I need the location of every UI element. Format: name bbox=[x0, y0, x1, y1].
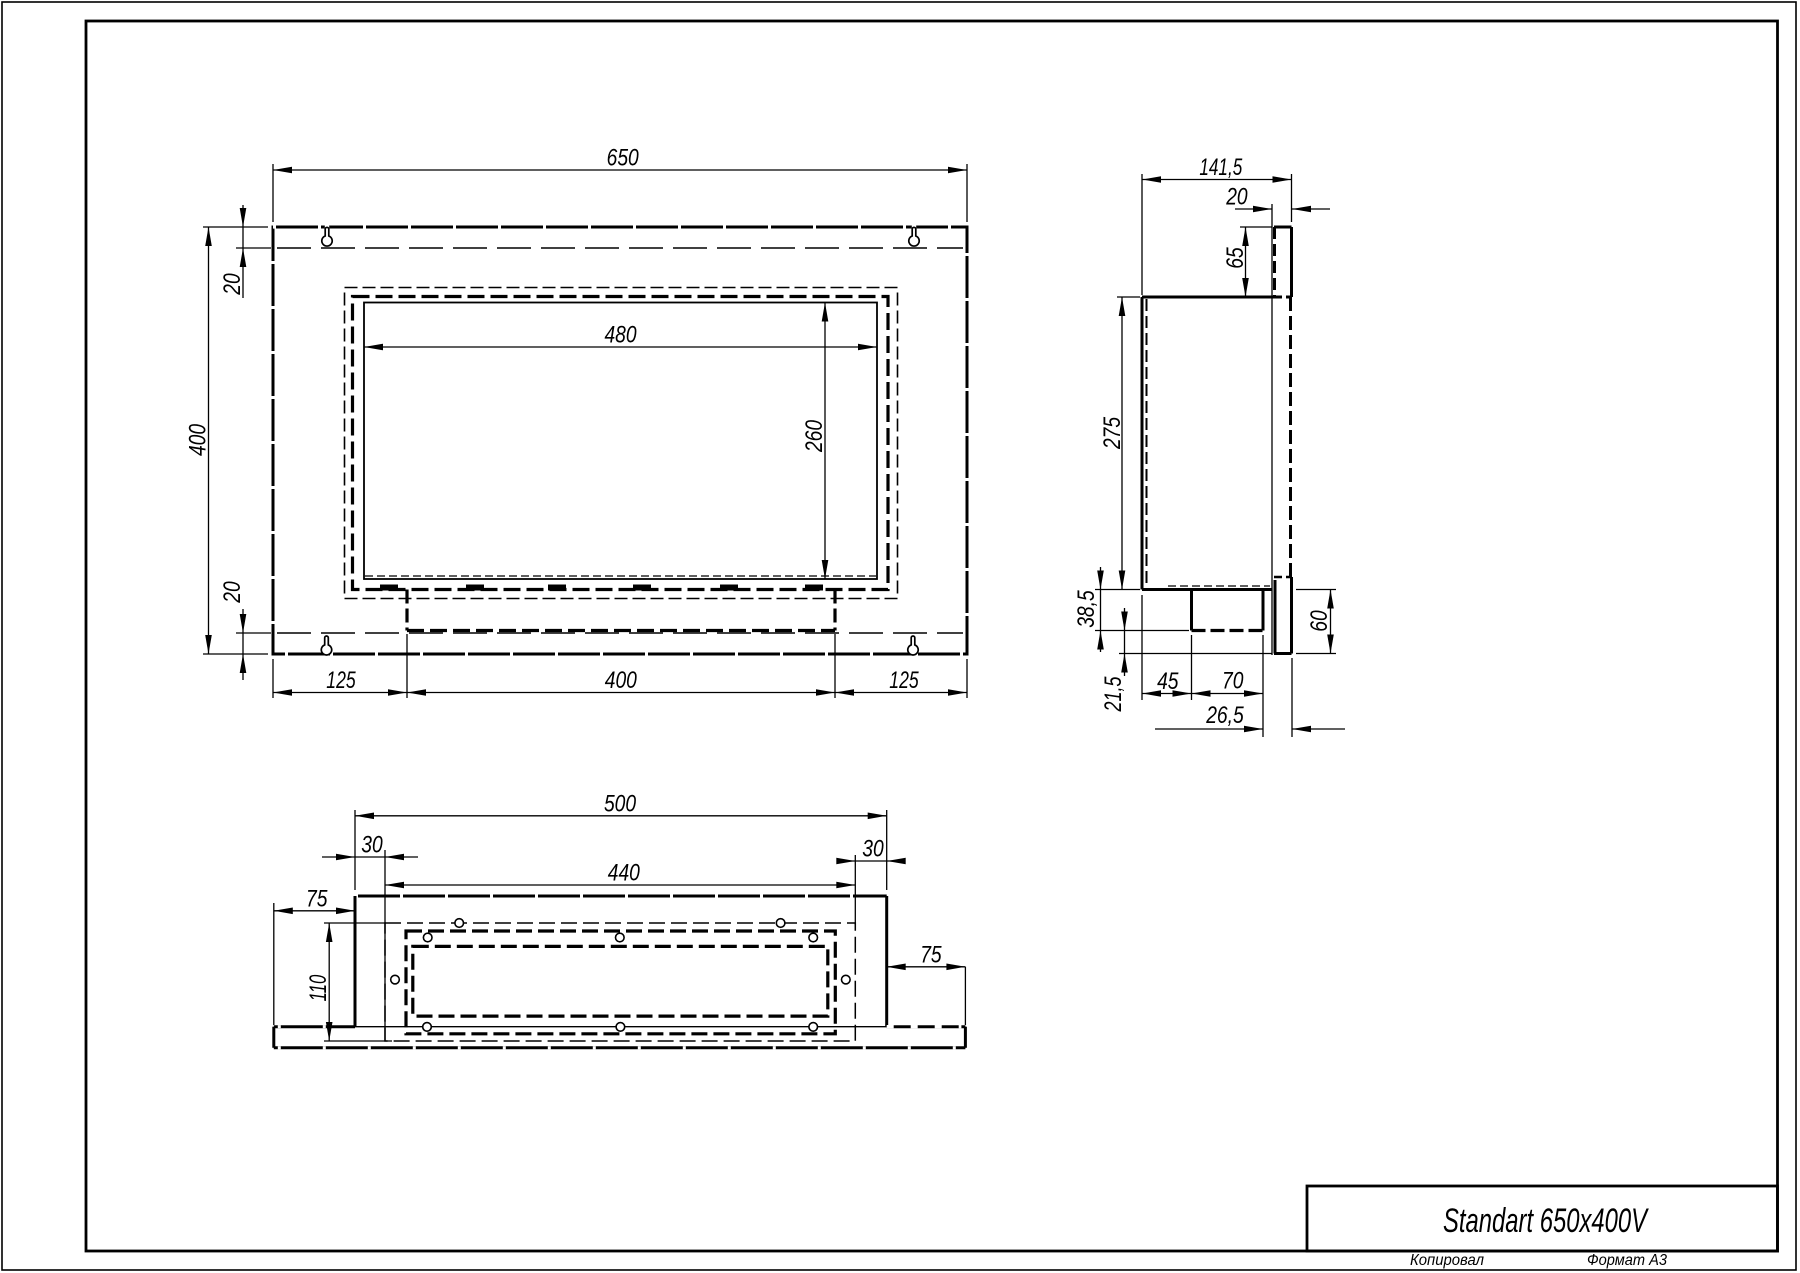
svg-text:30: 30 bbox=[862, 836, 884, 863]
svg-text:20: 20 bbox=[1225, 184, 1248, 211]
svg-text:400: 400 bbox=[185, 423, 212, 456]
svg-text:275: 275 bbox=[1099, 416, 1126, 449]
svg-text:260: 260 bbox=[801, 419, 828, 452]
svg-text:125: 125 bbox=[889, 667, 919, 694]
svg-text:Standart 650x400V: Standart 650x400V bbox=[1443, 1202, 1649, 1240]
svg-text:75: 75 bbox=[306, 885, 328, 912]
svg-text:Формат А3: Формат А3 bbox=[1587, 1252, 1667, 1269]
svg-text:650: 650 bbox=[607, 145, 640, 172]
svg-text:45: 45 bbox=[1157, 668, 1179, 695]
svg-text:110: 110 bbox=[305, 974, 332, 1001]
svg-text:75: 75 bbox=[920, 941, 942, 968]
svg-text:30: 30 bbox=[361, 832, 383, 859]
svg-text:26,5: 26,5 bbox=[1205, 702, 1244, 729]
svg-text:21,5: 21,5 bbox=[1100, 676, 1127, 712]
svg-text:70: 70 bbox=[1222, 668, 1244, 695]
svg-text:65: 65 bbox=[1222, 247, 1249, 269]
svg-text:Копировал: Копировал bbox=[1410, 1252, 1484, 1269]
svg-text:60: 60 bbox=[1306, 610, 1333, 632]
svg-text:400: 400 bbox=[605, 667, 638, 694]
svg-text:125: 125 bbox=[326, 667, 356, 694]
svg-text:20: 20 bbox=[219, 273, 246, 296]
svg-text:141,5: 141,5 bbox=[1199, 154, 1242, 181]
svg-text:500: 500 bbox=[604, 790, 637, 817]
svg-text:20: 20 bbox=[219, 581, 246, 604]
svg-text:440: 440 bbox=[608, 860, 641, 887]
svg-text:480: 480 bbox=[604, 322, 637, 349]
svg-text:38,5: 38,5 bbox=[1073, 590, 1100, 628]
